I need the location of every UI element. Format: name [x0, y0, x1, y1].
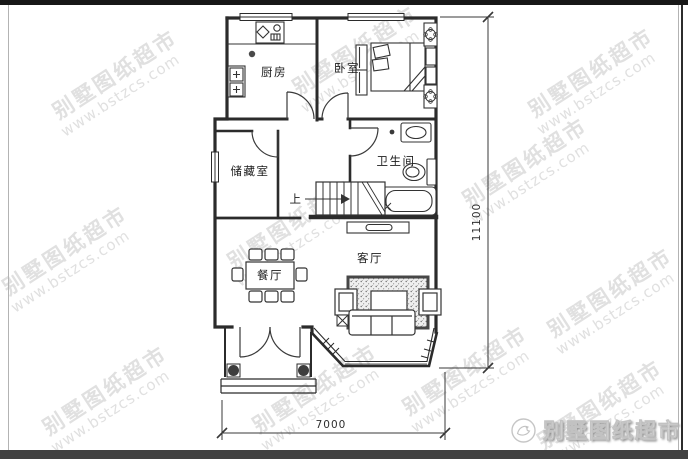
dining-label: 餐厅 [257, 268, 283, 282]
pillow [373, 44, 390, 58]
living-furniture [335, 277, 441, 335]
stairs-up-label: 上 [290, 192, 303, 206]
pillow [372, 58, 388, 71]
nightstand [424, 85, 438, 108]
kitchen-sink [228, 66, 245, 97]
right-frame-line [678, 5, 679, 450]
floor-drain [390, 130, 395, 135]
bedroom-door-arc [322, 93, 348, 119]
bathroom-label: 卫生间 [377, 154, 416, 168]
bedroom-window [348, 14, 404, 21]
storage-label: 储藏室 [231, 164, 270, 178]
dimension-width: 7000 [217, 372, 450, 440]
porch-column [227, 364, 240, 377]
logo-text: 别墅图纸超市 [543, 415, 681, 445]
stairs [305, 182, 385, 215]
bedroom-label: 卧室 [334, 61, 360, 75]
entrance-door-left-arc [240, 327, 270, 357]
dining-chair [265, 291, 278, 302]
site-logo: 别墅图纸超市 [510, 415, 681, 445]
dining-chair [265, 249, 278, 260]
tv-cabinet [347, 222, 409, 233]
dimension-depth: 11100 [439, 12, 494, 373]
stove [256, 22, 284, 43]
width-dimension-value: 7000 [316, 419, 347, 431]
porch-column [297, 364, 310, 377]
logo-bird-icon [510, 417, 537, 444]
dining-chair [281, 249, 294, 260]
bottom-bar [0, 450, 688, 459]
coffee-table [371, 291, 407, 311]
side-table [337, 315, 348, 326]
storage-window [212, 152, 219, 182]
windows [212, 14, 405, 183]
floor-plan-drawing: 11100 7000 厨房 卧室 储藏室 卫生间 餐厅 客厅 上 [0, 0, 688, 459]
bedside-cabinet [426, 48, 436, 65]
porch-steps [221, 379, 316, 393]
depth-dimension-value: 11100 [471, 203, 483, 241]
kitchen-window [240, 14, 292, 21]
nightstand [424, 23, 438, 46]
exterior-wall-entrance-right [303, 327, 312, 332]
dining-chair [249, 291, 262, 302]
left-frame-line [8, 5, 9, 450]
kitchen-fixtures [227, 22, 317, 97]
kitchen-label: 厨房 [261, 65, 287, 79]
storage-door-arc [252, 131, 278, 157]
bathroom-door-arc [350, 128, 378, 156]
bathtub [382, 187, 436, 215]
bedroom-furniture [356, 23, 437, 108]
dining-chair [296, 268, 307, 281]
dining-chair [249, 249, 262, 260]
entrance-door-right-arc [270, 327, 300, 357]
bed [371, 43, 425, 91]
living-label: 客厅 [357, 251, 383, 265]
armchair [419, 289, 441, 315]
bedside-cabinet [426, 67, 436, 84]
dining-chair [232, 268, 243, 281]
floor-plan-page: 别墅图纸超市www.bstzcs.com 别墅图纸超市www.bstzcs.co… [0, 0, 688, 459]
sofa [349, 310, 415, 335]
top-bar [0, 0, 688, 5]
bathroom-sink [401, 123, 431, 142]
floor-drain [249, 51, 255, 57]
right-frame-border [681, 5, 683, 450]
dining-chair [281, 291, 294, 302]
kitchen-door-arc [287, 92, 314, 119]
